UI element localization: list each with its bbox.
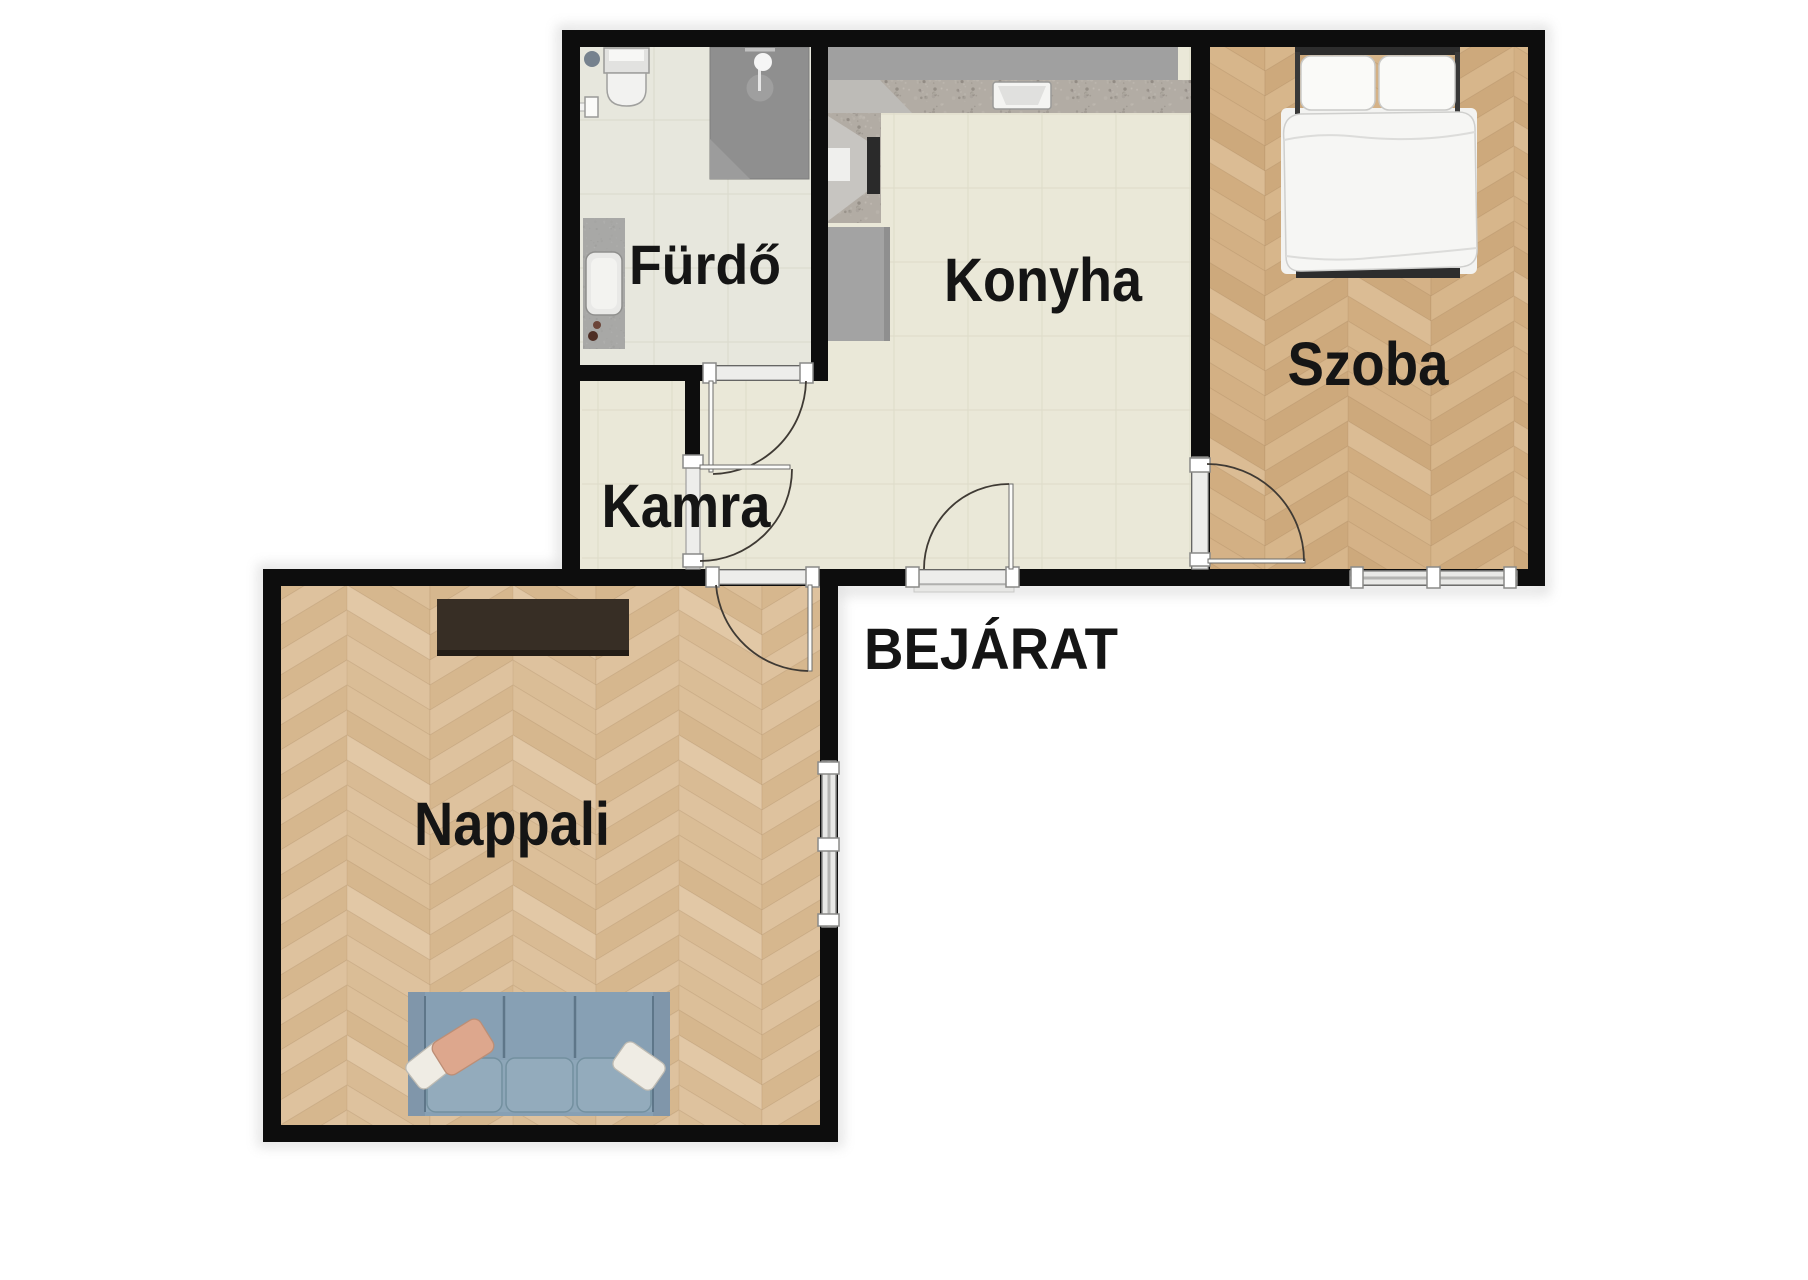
svg-text:Nappali: Nappali [414, 790, 610, 858]
svg-text:BEJÁRAT: BEJÁRAT [864, 617, 1118, 682]
svg-text:Fürdő: Fürdő [629, 233, 781, 296]
svg-text:Kamra: Kamra [602, 472, 772, 540]
svg-text:Konyha: Konyha [944, 246, 1143, 314]
svg-text:Szoba: Szoba [1288, 330, 1450, 398]
